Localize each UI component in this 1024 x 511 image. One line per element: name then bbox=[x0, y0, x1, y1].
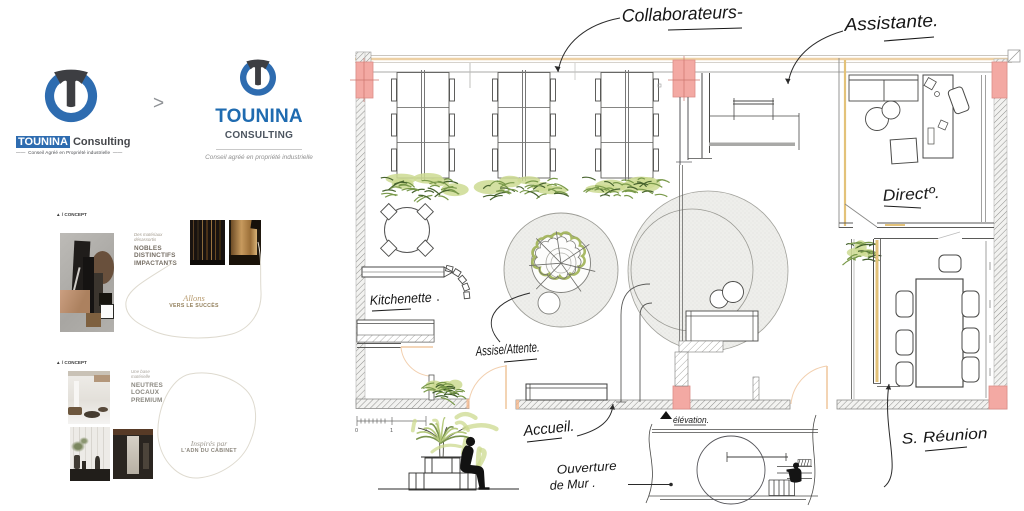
svg-text:élévation.: élévation. bbox=[673, 415, 709, 425]
svg-text:1: 1 bbox=[390, 428, 393, 434]
svg-text:Kitchenette: Kitchenette bbox=[369, 290, 432, 308]
svg-text:Ouverture: Ouverture bbox=[556, 459, 617, 477]
svg-text:0: 0 bbox=[355, 428, 358, 434]
svg-text:Directº.: Directº. bbox=[882, 185, 940, 205]
svg-text:de Mur .: de Mur . bbox=[549, 476, 596, 493]
svg-text:Collaborateurs-: Collaborateurs- bbox=[621, 2, 743, 26]
svg-text:Assise/Attente.: Assise/Attente. bbox=[474, 339, 540, 358]
svg-text:Assistante.: Assistante. bbox=[843, 10, 939, 35]
svg-text:S. Réunion: S. Réunion bbox=[901, 425, 988, 448]
svg-text:Accueil.: Accueil. bbox=[522, 418, 575, 440]
